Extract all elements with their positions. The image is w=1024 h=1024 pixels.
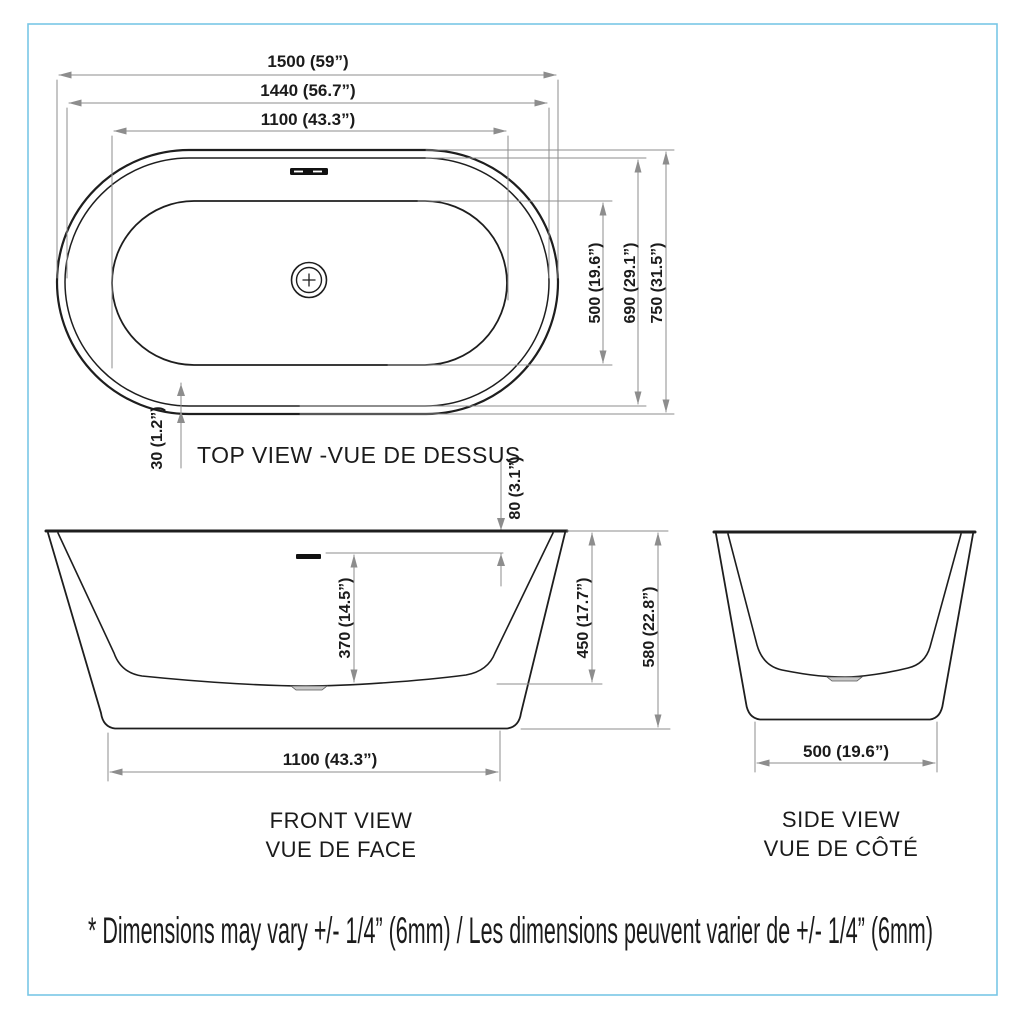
dim-label-base-width: 500 (19.6”) (803, 742, 889, 761)
front-view-title-fr: VUE DE FACE (266, 837, 417, 862)
dim-label-basin-width: 500 (19.6”) (587, 243, 604, 324)
side-view-basin-outline (728, 534, 961, 677)
dim-label-overall-width: 750 (31.5”) (649, 243, 666, 324)
dim-label-basin-length: 1100 (43.3”) (261, 110, 356, 129)
front-view-outer-outline (48, 533, 565, 729)
dim-label-rim-length: 1440 (56.7”) (260, 81, 355, 100)
top-view-inner-rim-outline (65, 158, 549, 406)
side-view: 500 (19.6”) SIDE VIEW VUE DE CÔTÉ (714, 532, 975, 861)
tolerance-footnote: * Dimensions may vary +/- 1/4” (6mm) / L… (88, 910, 933, 951)
dim-label-water-depth: 370 (14.5”) (337, 578, 354, 659)
side-view-title-en: SIDE VIEW (782, 807, 900, 832)
front-view: 370 (14.5”) 450 (17.7”) 580 (22.8”) 1100… (46, 531, 670, 862)
dim-label-rim-width: 690 (29.1”) (622, 243, 639, 324)
bathtub-dimension-drawing: 1500 (59”) 1440 (56.7”) 1100 (43.3”) 500… (0, 0, 1024, 1024)
dim-label-lip-width: 30 (1.2”) (149, 406, 166, 469)
front-drain-bump (291, 686, 327, 690)
front-view-title-en: FRONT VIEW (270, 808, 413, 833)
overflow-icon (290, 168, 328, 175)
top-view-title: TOP VIEW -VUE DE DESSUS (197, 442, 521, 468)
top-view: 1500 (59”) 1440 (56.7”) 1100 (43.3”) 500… (57, 52, 674, 586)
front-overflow-icon (296, 554, 321, 559)
dim-label-overall-length: 1500 (59”) (267, 52, 348, 71)
dim-label-interior-depth: 450 (17.7”) (575, 578, 592, 659)
dim-label-base-length: 1100 (43.3”) (283, 750, 378, 769)
top-view-dimension-lines (59, 75, 666, 412)
dim-arrows-80 (497, 518, 505, 566)
top-view-outer-rim-outline (57, 150, 558, 414)
side-drain-bump (827, 677, 862, 681)
side-view-title-fr: VUE DE CÔTÉ (764, 836, 919, 861)
drain-icon (292, 263, 327, 298)
dim-label-overall-height: 580 (22.8”) (641, 587, 658, 668)
side-view-outer-outline (716, 534, 973, 720)
